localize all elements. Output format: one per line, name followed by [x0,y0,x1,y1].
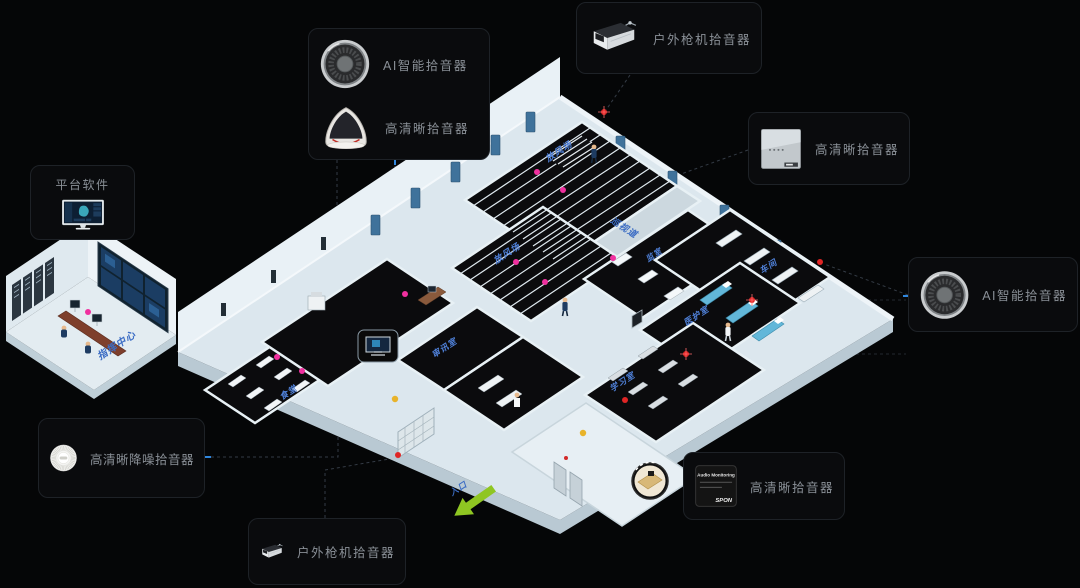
isometric-solution-scene: 放风场 放风场 巡视道 监室 车间 医护室 学习室 审讯室 食堂 指挥中心 入口… [0,0,1080,588]
callout-label: 高清晰拾音器 [385,118,469,137]
callout-row-cone: 高清晰拾音器 [319,104,479,150]
desk-device-inset [632,462,668,499]
bullet-camera-icon [259,532,285,572]
callout-outdoor-bullet-bottom: 户外枪机拾音器 [248,518,406,585]
platform-title: 平台软件 [55,176,109,193]
bullet-camera-icon [587,16,641,60]
device-brand-text: SPON [715,498,732,504]
device-screen-text: Audio Monitoring [697,473,735,478]
callout-hd-audio-monitoring: Audio Monitoring SPON 高清晰拾音器 [683,452,845,520]
callout-label: 高清晰降噪拾音器 [90,449,194,468]
wall-panel-pickup-icon [759,125,803,173]
platform-monitor-icon [46,199,120,231]
ai-disc-pickup-icon [319,38,371,90]
callout-label: 户外枪机拾音器 [297,542,395,561]
callout-label: AI智能拾音器 [383,55,468,74]
callout-outdoor-bullet-top: 户外枪机拾音器 [576,2,762,74]
command-center [6,221,176,399]
callout-ai-disc-right: AI智能拾音器 [908,257,1078,332]
callout-row-ai-disc: AI智能拾音器 [319,38,479,90]
callout-label: 高清晰拾音器 [815,139,899,158]
callout-ai-and-hd-pickup: AI智能拾音器 高清晰拾音器 [308,28,490,160]
ai-disc-pickup-icon [919,268,970,322]
callout-noise-reduction-disc: 高清晰降噪拾音器 [38,418,205,498]
callout-label: 高清晰拾音器 [750,477,834,496]
monitor-inset [358,330,398,362]
callout-label: 户外枪机拾音器 [653,29,751,48]
cone-pickup-icon [319,104,373,150]
callout-hd-panel-right: 高清晰拾音器 [748,112,910,185]
audio-monitor-panel-icon: Audio Monitoring SPON [694,462,738,510]
callout-label: AI智能拾音器 [982,285,1067,304]
white-disc-pickup-icon [49,430,78,486]
callout-platform-software: 平台软件 [30,165,135,240]
